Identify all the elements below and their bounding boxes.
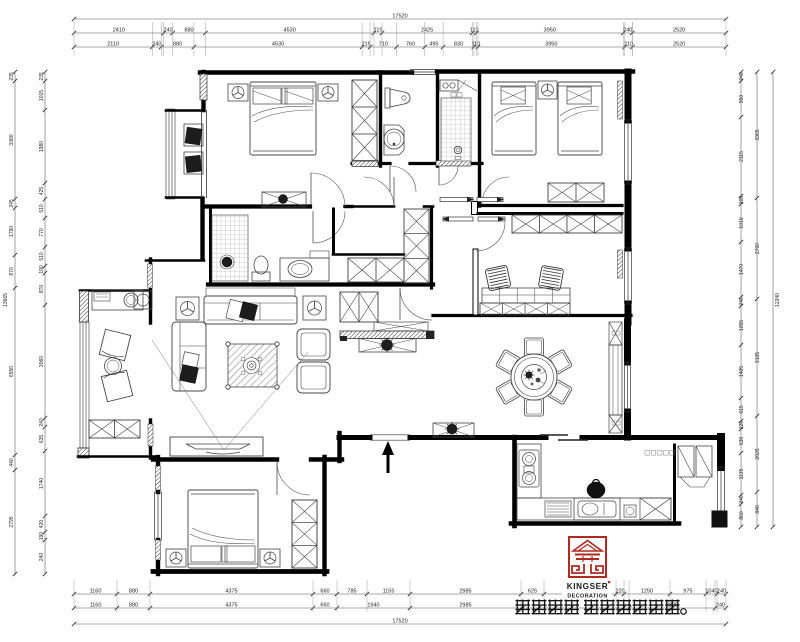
- svg-text:635: 635: [39, 435, 45, 444]
- svg-text:220: 220: [739, 421, 745, 430]
- svg-text:240: 240: [152, 42, 161, 48]
- svg-text:240: 240: [716, 603, 725, 609]
- svg-text:1135: 1135: [739, 468, 745, 479]
- svg-text:3365: 3365: [755, 129, 761, 140]
- svg-text:6550: 6550: [9, 366, 15, 377]
- svg-text:240: 240: [164, 28, 173, 34]
- svg-text:870: 870: [39, 285, 45, 294]
- svg-text:830: 830: [454, 42, 463, 48]
- svg-text:4375: 4375: [225, 589, 237, 595]
- svg-text:240: 240: [739, 72, 745, 81]
- svg-text:1040: 1040: [705, 589, 717, 595]
- svg-text:210: 210: [624, 42, 633, 48]
- svg-text:2410: 2410: [113, 28, 125, 34]
- svg-text:1470: 1470: [739, 264, 745, 275]
- svg-text:13665: 13665: [3, 293, 9, 307]
- svg-text:880: 880: [184, 28, 193, 34]
- svg-text:1155: 1155: [383, 589, 395, 595]
- svg-text:2025: 2025: [755, 448, 761, 459]
- svg-text:2985: 2985: [459, 603, 471, 609]
- svg-text:17520: 17520: [392, 14, 407, 20]
- svg-text:495: 495: [429, 42, 438, 48]
- svg-text:1980: 1980: [39, 141, 45, 152]
- svg-text:3105: 3105: [755, 352, 761, 363]
- svg-text:235: 235: [9, 72, 15, 81]
- svg-text:860: 860: [739, 511, 745, 520]
- svg-text:KINGSER: KINGSER: [567, 582, 609, 591]
- svg-text:880: 880: [129, 589, 138, 595]
- svg-text:110: 110: [470, 28, 479, 34]
- svg-text:240: 240: [717, 589, 726, 595]
- svg-text:660: 660: [320, 603, 329, 609]
- svg-text:190: 190: [39, 532, 45, 541]
- svg-text:1790: 1790: [9, 226, 15, 237]
- svg-text:3380: 3380: [9, 134, 15, 145]
- svg-text:4530: 4530: [272, 42, 284, 48]
- svg-text:4375: 4375: [225, 603, 237, 609]
- svg-text:880: 880: [173, 42, 182, 48]
- svg-text:760: 760: [406, 42, 415, 48]
- svg-text:1940: 1940: [367, 603, 379, 609]
- svg-text:205: 205: [739, 196, 745, 205]
- svg-text:3950: 3950: [545, 42, 557, 48]
- svg-text:870: 870: [9, 267, 15, 276]
- svg-text:420: 420: [39, 520, 45, 529]
- svg-text:2795: 2795: [9, 516, 15, 527]
- svg-text:240: 240: [739, 297, 745, 306]
- svg-text:4530: 4530: [284, 28, 296, 34]
- svg-text:1015: 1015: [39, 90, 45, 101]
- svg-text:880: 880: [129, 603, 138, 609]
- svg-text:240: 240: [739, 495, 745, 504]
- svg-text:1160: 1160: [90, 589, 102, 595]
- svg-text:235: 235: [39, 72, 45, 81]
- svg-text:3060: 3060: [39, 356, 45, 367]
- svg-text:2520: 2520: [673, 42, 685, 48]
- svg-text:510: 510: [39, 204, 45, 213]
- svg-text:1250: 1250: [641, 589, 653, 595]
- svg-text:2985: 2985: [459, 589, 471, 595]
- svg-text:625: 625: [528, 589, 537, 595]
- svg-text:2520: 2520: [673, 28, 685, 34]
- svg-text:440: 440: [9, 458, 15, 467]
- svg-text:1405: 1405: [739, 366, 745, 377]
- svg-text:17520: 17520: [392, 619, 407, 625]
- svg-text:2115: 2115: [739, 151, 745, 162]
- svg-text:12340: 12340: [775, 293, 781, 307]
- svg-text:215: 215: [373, 28, 382, 34]
- svg-text:1010: 1010: [739, 217, 745, 228]
- svg-text:710: 710: [379, 42, 388, 48]
- svg-text:840: 840: [755, 505, 761, 514]
- svg-text:245: 245: [9, 199, 15, 208]
- svg-text:785: 785: [347, 589, 356, 595]
- svg-text:425: 425: [39, 187, 45, 196]
- svg-text:215: 215: [362, 42, 371, 48]
- svg-text:770: 770: [39, 228, 45, 237]
- svg-text:615: 615: [739, 405, 745, 414]
- svg-text:2700: 2700: [755, 243, 761, 254]
- svg-text:660: 660: [320, 589, 329, 595]
- svg-text:3950: 3950: [544, 28, 556, 34]
- svg-text:2110: 2110: [107, 42, 119, 48]
- svg-text:975: 975: [683, 589, 692, 595]
- svg-text:220: 220: [615, 589, 624, 595]
- svg-text:2425: 2425: [421, 28, 433, 34]
- svg-text:240: 240: [39, 553, 45, 562]
- svg-text:1160: 1160: [90, 603, 102, 609]
- svg-text:510: 510: [39, 252, 45, 261]
- svg-text:190: 190: [39, 265, 45, 274]
- svg-text:630: 630: [739, 437, 745, 446]
- svg-text:1055: 1055: [739, 320, 745, 331]
- svg-text:950: 950: [739, 95, 745, 104]
- svg-text:240: 240: [39, 418, 45, 427]
- svg-text:110: 110: [472, 42, 481, 48]
- svg-text:1740: 1740: [39, 478, 45, 489]
- svg-text:DECORATION: DECORATION: [567, 594, 607, 600]
